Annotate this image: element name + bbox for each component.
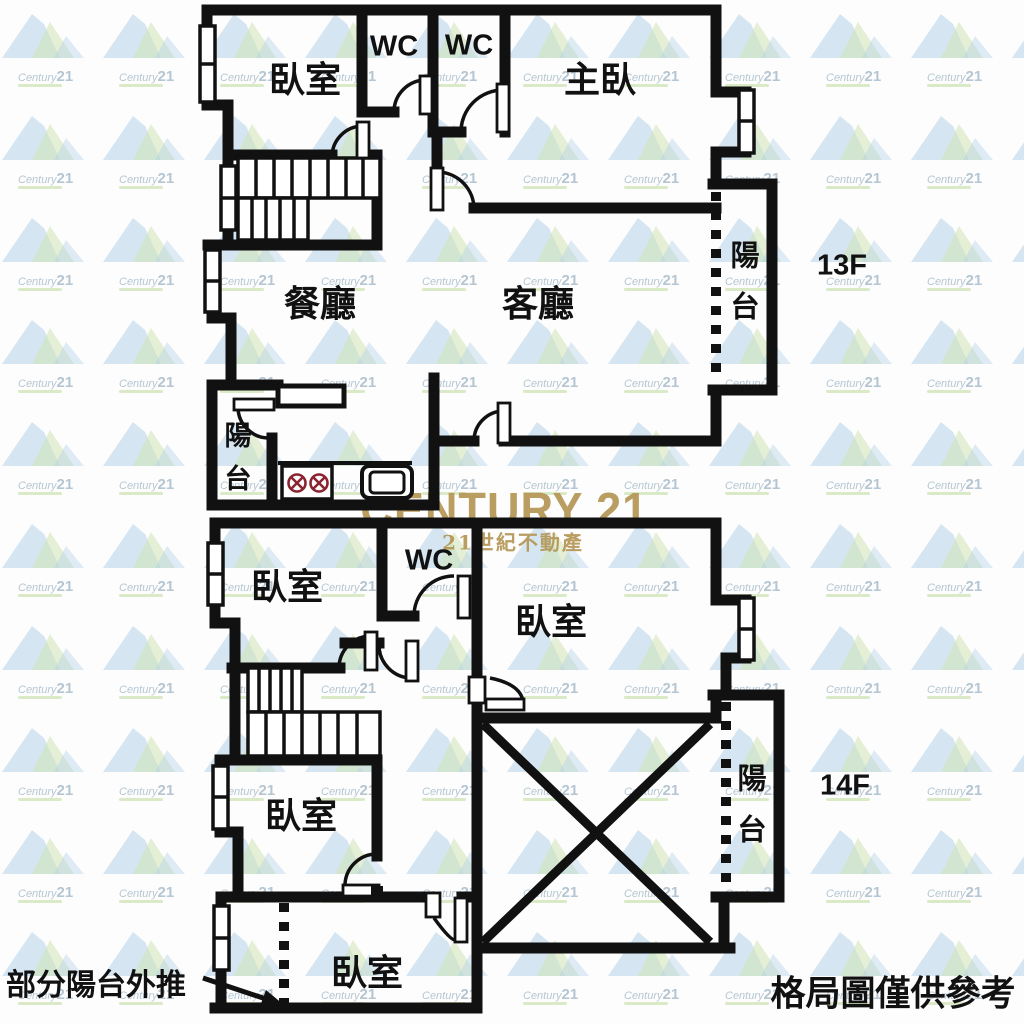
door-pivot-block — [371, 886, 383, 899]
room-label-bedroom-13f: 臥室 — [269, 51, 341, 103]
room-label-dining-13f: 餐廳 — [284, 275, 356, 327]
void-cross-icon — [483, 724, 710, 942]
balcony-pushout-note: 部分陽台外推 — [6, 960, 186, 1004]
room-label-living-13f: 客廳 — [502, 275, 574, 327]
room-label-bedroom-right-14f: 臥室 — [515, 593, 587, 645]
disclaimer-text: 格局圖僅供參考 — [770, 966, 1015, 1017]
room-label-bedroom-top-14f: 臥室 — [251, 558, 323, 610]
stove-icon — [282, 466, 332, 499]
room-label-balcony-kitchen-13f: 陽台 — [216, 421, 255, 507]
floorplan-page: Century21 Century21 Century21 — [0, 0, 1024, 1024]
stairs-symbol-14f — [248, 668, 380, 756]
room-label-wc-14f: WC — [405, 545, 453, 578]
room-label-wc2-13f: WC — [445, 30, 493, 63]
kitchen-counter — [278, 386, 412, 463]
room-label-bedroom-mid-14f: 臥室 — [265, 787, 337, 839]
room-label-master-13f: 主臥 — [564, 51, 636, 103]
room-label-bedroom-bottom-14f: 臥室 — [331, 944, 403, 996]
floor-label-14f: 14F — [820, 770, 870, 803]
floor-label-13f: 13F — [817, 250, 867, 283]
room-label-balcony-right-13f: 陽台 — [722, 240, 764, 342]
room-label-balcony-right-14f: 陽台 — [729, 763, 771, 865]
floorplan-drawing — [0, 0, 1024, 1024]
stairs-symbol-13f — [238, 158, 380, 240]
sink-icon — [362, 466, 412, 498]
room-label-wc1-13f: WC — [370, 31, 418, 64]
